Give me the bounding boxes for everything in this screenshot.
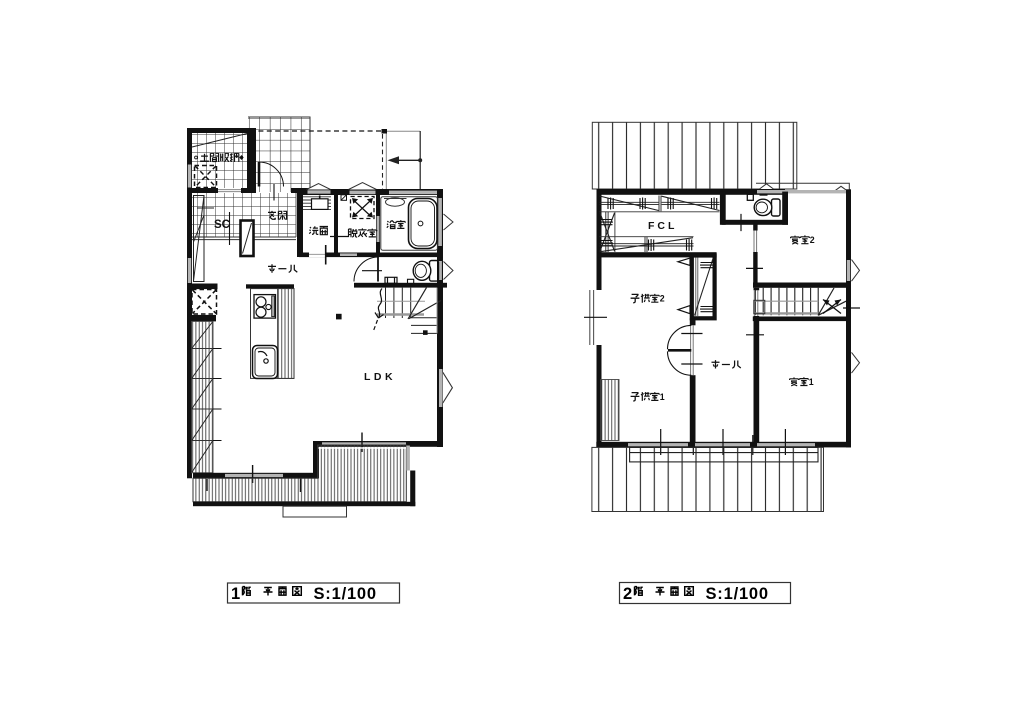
svg-text:FCL: FCL <box>648 220 677 232</box>
svg-text:LDK: LDK <box>364 371 396 383</box>
svg-text:1: 1 <box>809 377 814 387</box>
svg-text:S:1/100: S:1/100 <box>314 585 377 603</box>
svg-text:1: 1 <box>660 392 665 402</box>
svg-text:SC: SC <box>214 219 230 231</box>
svg-text:S:1/100: S:1/100 <box>706 585 769 603</box>
svg-text:2: 2 <box>810 235 815 245</box>
svg-text:2: 2 <box>660 294 665 304</box>
svg-text:2: 2 <box>623 585 632 603</box>
svg-text:1: 1 <box>231 585 240 603</box>
